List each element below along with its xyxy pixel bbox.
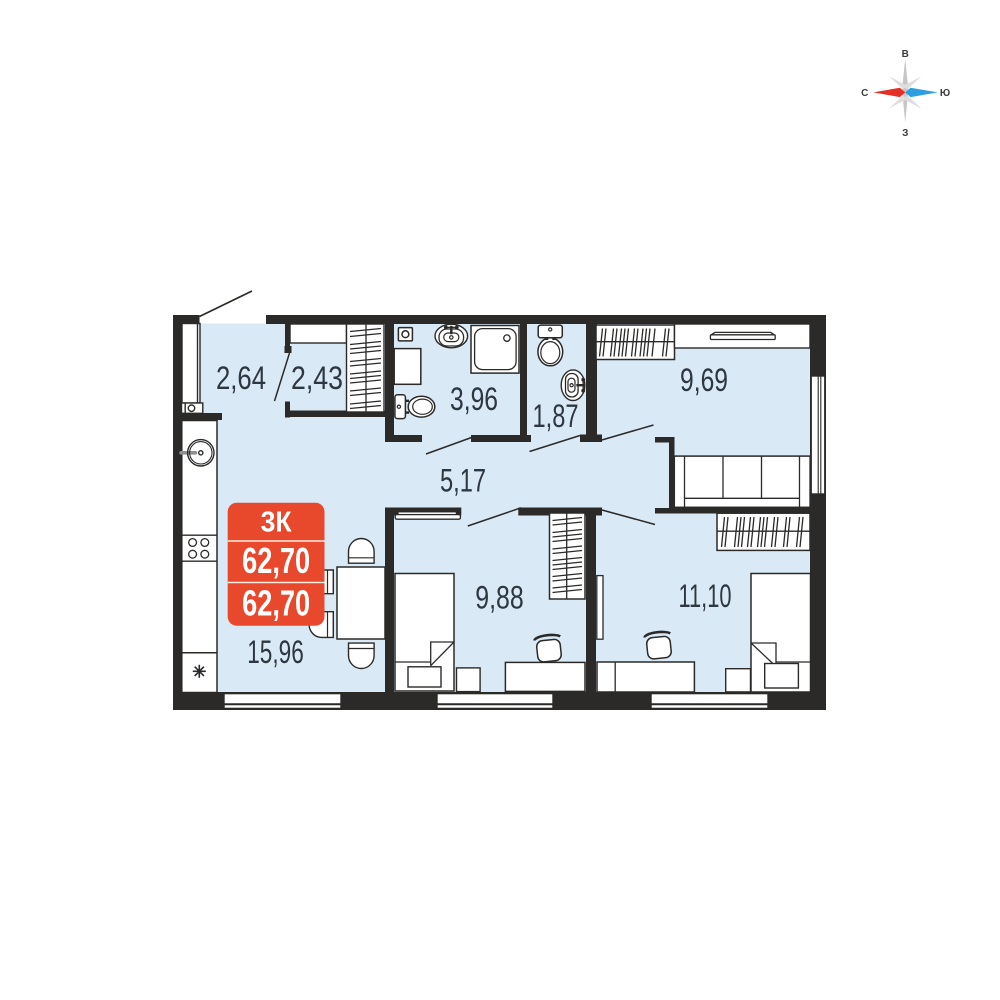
svg-text:62,70: 62,70 xyxy=(242,583,310,624)
svg-text:62,70: 62,70 xyxy=(242,540,310,581)
svg-text:Ю: Ю xyxy=(940,88,950,99)
svg-text:15,96: 15,96 xyxy=(247,634,304,670)
svg-text:2,43: 2,43 xyxy=(291,360,343,396)
svg-text:9,69: 9,69 xyxy=(680,362,728,398)
svg-text:5,17: 5,17 xyxy=(440,463,486,499)
svg-text:11,10: 11,10 xyxy=(679,578,732,614)
svg-text:1,87: 1,87 xyxy=(533,398,579,434)
svg-text:С: С xyxy=(861,88,868,99)
svg-text:3,96: 3,96 xyxy=(450,381,498,417)
svg-text:9,88: 9,88 xyxy=(475,580,524,616)
svg-text:2,64: 2,64 xyxy=(216,360,266,396)
svg-text:3К: 3К xyxy=(261,507,292,539)
svg-text:З: З xyxy=(902,128,908,139)
svg-text:В: В xyxy=(902,49,909,60)
